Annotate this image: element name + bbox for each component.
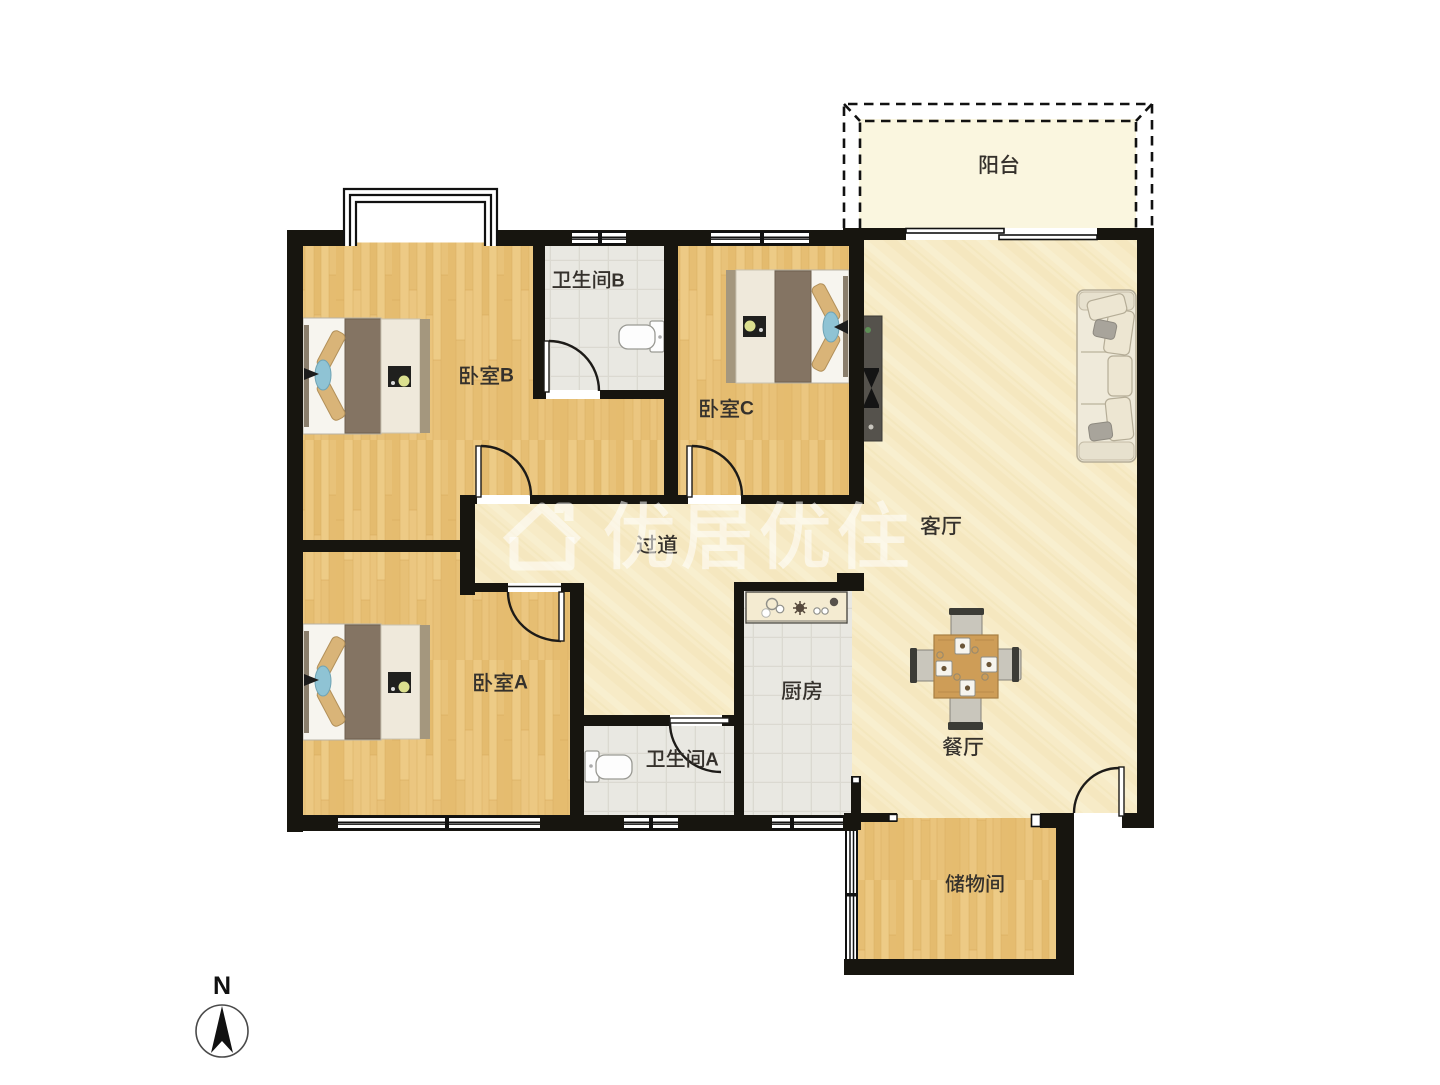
svg-text:N: N — [213, 972, 231, 1000]
svg-text:A: A — [514, 673, 528, 694]
svg-text:B: B — [611, 270, 624, 291]
svg-text:B: B — [500, 366, 514, 387]
svg-text:A: A — [705, 749, 718, 770]
svg-text:C: C — [740, 399, 754, 420]
